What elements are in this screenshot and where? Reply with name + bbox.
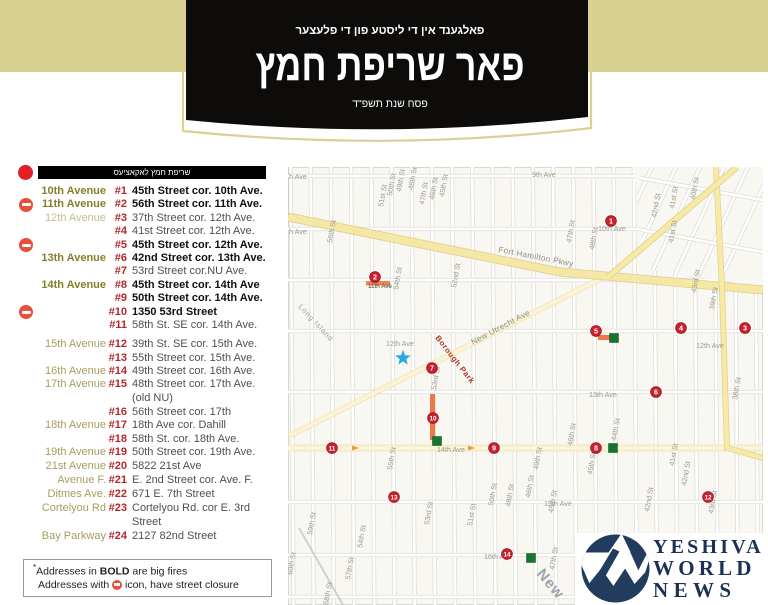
svg-text:7: 7	[430, 363, 434, 372]
svg-text:6: 6	[654, 387, 658, 396]
svg-text:13th Ave: 13th Ave	[589, 390, 617, 399]
svg-text:h Ave: h Ave	[289, 227, 307, 236]
svg-text:11th Ave: 11th Ave	[368, 283, 392, 290]
svg-text:3: 3	[743, 323, 747, 332]
svg-text:12th Ave: 12th Ave	[386, 339, 414, 348]
svg-text:12: 12	[704, 494, 712, 501]
svg-text:4: 4	[679, 323, 683, 332]
svg-text:12th Ave: 12th Ave	[696, 341, 724, 350]
svg-text:14: 14	[503, 551, 511, 558]
svg-text:14th Ave: 14th Ave	[437, 445, 465, 454]
svg-text:11: 11	[329, 445, 336, 452]
svg-text:2: 2	[373, 272, 377, 281]
svg-text:8: 8	[594, 443, 598, 452]
svg-text:1: 1	[609, 216, 613, 225]
svg-text:h Ave: h Ave	[289, 172, 307, 181]
svg-text:9: 9	[492, 443, 496, 452]
svg-text:15th Ave: 15th Ave	[544, 499, 572, 508]
svg-text:5: 5	[594, 326, 598, 335]
svg-text:9th Ave: 9th Ave	[532, 170, 556, 179]
svg-text:13: 13	[390, 494, 398, 501]
svg-text:10: 10	[429, 415, 437, 422]
